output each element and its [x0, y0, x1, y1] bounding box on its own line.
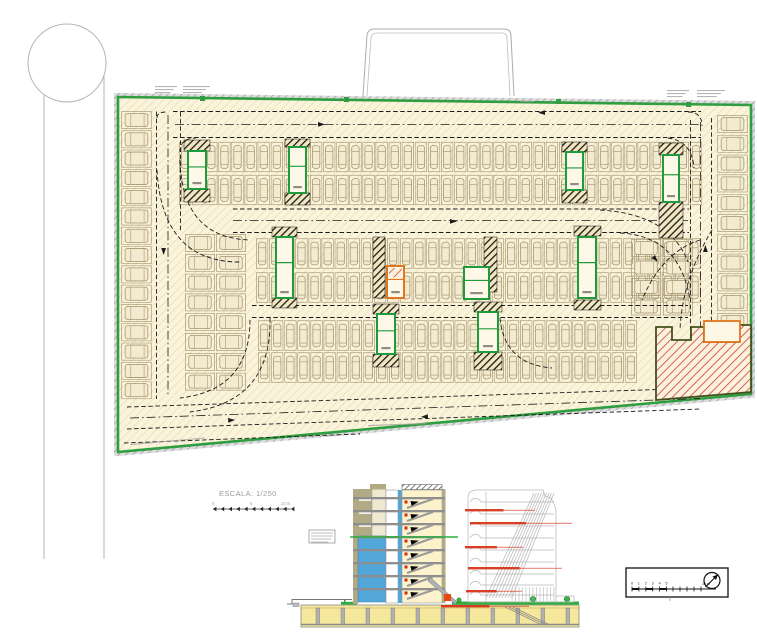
parking-stall	[122, 266, 152, 283]
red-annotation-text	[470, 522, 526, 524]
parking-stall	[122, 246, 152, 263]
hazard-stripe	[373, 237, 385, 298]
parking-stall	[122, 382, 152, 399]
red-annotation-text	[441, 605, 489, 607]
drawing-sheet: ESCALA: 1/250 0 5 10 m	[0, 0, 757, 634]
parking-stall	[185, 274, 214, 291]
parking-stall	[122, 189, 152, 206]
tree-icon	[457, 598, 461, 602]
scale-tick-10m: 10 m	[281, 501, 291, 506]
parking-stall	[122, 343, 152, 360]
parking-stall	[185, 353, 214, 370]
parking-stall	[718, 214, 748, 231]
elevator-shaft	[386, 490, 398, 603]
north-scale-box: 01234510 m	[626, 568, 728, 601]
border-marker	[344, 97, 349, 102]
micro-text-line	[667, 90, 689, 91]
hazard-stripe	[285, 139, 310, 147]
micro-text-line	[155, 92, 170, 93]
scale-tick	[252, 507, 255, 511]
parking-stall	[631, 259, 660, 276]
border-marker	[556, 99, 561, 104]
parking-stall	[216, 254, 245, 271]
fire-exit-mark	[405, 501, 408, 504]
micro-text-line	[155, 89, 174, 90]
parking-stall	[216, 234, 245, 251]
facade-diagonal-line	[512, 493, 554, 598]
hazard-stripe	[272, 298, 297, 308]
parking-stall	[185, 373, 214, 390]
scale-tick-0: 0	[212, 501, 215, 506]
parking-stall	[216, 274, 245, 291]
parking-stall	[718, 115, 748, 132]
core-label-mark	[293, 186, 302, 188]
parapet	[370, 484, 386, 490]
hazard-stripe	[574, 300, 601, 310]
legend-box	[309, 530, 335, 543]
scale-number: 1	[638, 582, 640, 586]
micro-text-line	[183, 92, 202, 93]
hazard-stripe	[474, 302, 502, 312]
facade-blue-strip	[398, 490, 402, 603]
parking-stall	[718, 274, 748, 291]
scale-number: 5	[666, 582, 668, 586]
cad-canvas: ESCALA: 1/250 0 5 10 m	[0, 0, 757, 634]
hazard-stripe	[562, 142, 587, 152]
red-annotation-text	[466, 590, 497, 592]
scale-tick-5: 5	[250, 501, 253, 506]
core-label-mark	[391, 291, 400, 293]
building-section	[287, 484, 579, 627]
hazard-stripe	[659, 202, 683, 238]
border-marker	[686, 102, 691, 107]
parking-stall	[663, 298, 692, 315]
parking-stall	[718, 135, 748, 152]
scale-tick	[221, 507, 224, 511]
exit-orange-box	[444, 594, 451, 601]
basement-column	[441, 608, 445, 625]
micro-text-line	[667, 96, 682, 97]
parking-stall	[663, 278, 692, 295]
parking-stall	[122, 285, 152, 302]
facade-diagonal-line	[502, 493, 547, 598]
fire-exit-mark	[405, 514, 408, 517]
scale-segment	[632, 588, 639, 590]
basement-column	[366, 608, 370, 625]
scale-segment	[660, 588, 667, 590]
basement-column	[416, 608, 420, 625]
parking-stall	[216, 314, 245, 331]
micro-text-line	[183, 89, 206, 90]
fire-exit-mark	[405, 553, 408, 556]
fire-exit-mark	[405, 579, 408, 582]
micro-text-cluster	[520, 101, 534, 102]
micro-text-cluster	[697, 90, 725, 97]
facade-diagonal-line	[489, 493, 536, 598]
micro-text-line	[697, 93, 721, 94]
section-tower	[350, 484, 458, 605]
scale-tick	[291, 507, 294, 511]
basement-column	[391, 608, 395, 625]
facade-diagonal-line	[508, 493, 551, 598]
micro-text-line	[667, 93, 686, 94]
scale-number: 4	[659, 582, 661, 586]
parking-stall	[185, 294, 214, 311]
parking-stall	[122, 324, 152, 341]
parking-stall	[631, 239, 660, 256]
red-annotations	[441, 509, 572, 607]
ramp-orange-box	[704, 321, 740, 342]
parking-stall	[185, 234, 214, 251]
red-annotation-text	[465, 546, 497, 548]
red-annotation-text	[468, 567, 520, 569]
hazard-stripe	[285, 193, 310, 205]
border-marker	[200, 96, 205, 101]
parking-stall	[718, 294, 748, 311]
scale-number: 0	[631, 582, 633, 586]
elevation-floor-line	[470, 534, 554, 538]
basement-column	[466, 608, 470, 625]
micro-text-line	[697, 90, 725, 91]
parking-stall	[122, 227, 152, 244]
core-label-mark	[382, 347, 391, 349]
core-label-mark	[193, 182, 202, 184]
parking-stall	[718, 254, 748, 271]
basement-column	[341, 608, 345, 625]
parking-stall	[122, 150, 152, 167]
parking-stall	[631, 278, 660, 295]
parking-stall	[122, 208, 152, 225]
parking-stall	[185, 333, 214, 350]
ramp-area	[656, 321, 751, 400]
hazard-stripe	[272, 227, 297, 237]
facade-diagonal-line	[499, 493, 544, 598]
scale-tick	[268, 507, 271, 511]
parking-stall	[122, 131, 152, 148]
hazard-stripe	[184, 189, 210, 202]
scale-number: 3	[652, 582, 654, 586]
facade-diagonal-line	[492, 493, 539, 598]
building-footprint-inner	[367, 33, 510, 96]
fire-exit-mark	[405, 527, 408, 530]
parking-stall	[631, 298, 660, 315]
parking-stall	[216, 333, 245, 350]
basement-column	[491, 608, 495, 625]
micro-text-line	[697, 96, 717, 97]
basement-column	[316, 608, 320, 625]
scale-tick	[260, 507, 263, 511]
scale-tick	[229, 507, 232, 511]
facade-blue-panel	[358, 536, 386, 602]
parking-stall	[718, 234, 748, 251]
fire-exit-mark	[405, 540, 408, 543]
roof-hatch	[402, 485, 442, 490]
core-hatch-cell	[389, 268, 402, 277]
fire-exit-mark	[405, 592, 408, 595]
tree-icon	[564, 596, 570, 602]
hazard-stripe	[574, 226, 601, 236]
stair-core	[578, 237, 596, 298]
scale-number: 2	[645, 582, 647, 586]
hazard-stripe	[373, 354, 399, 367]
parking-stall	[718, 195, 748, 212]
micro-text-cluster	[155, 86, 177, 93]
hazard-stripe	[184, 140, 210, 151]
parking-stall	[718, 175, 748, 192]
parking-stall	[663, 239, 692, 256]
building-footprint-outline	[363, 29, 514, 96]
parking-stall	[216, 294, 245, 311]
micro-text-cluster	[183, 86, 210, 93]
scale-tick	[244, 507, 247, 511]
stair-core	[276, 237, 293, 298]
scale-tick	[275, 507, 278, 511]
elevation-floor-line	[470, 570, 554, 574]
parking-stall	[185, 254, 214, 271]
core-label-mark	[470, 292, 483, 294]
parking-stall	[185, 314, 214, 331]
core-label-mark	[667, 195, 675, 197]
core-label-mark	[583, 291, 592, 293]
cul-de-sac-road	[28, 24, 106, 102]
parking-stall	[122, 304, 152, 321]
parking-stall	[122, 362, 152, 379]
stair-core	[663, 155, 679, 202]
micro-text-line	[155, 86, 177, 87]
parking-plan	[118, 86, 751, 452]
scale-tick	[236, 507, 239, 511]
scale-label: ESCALA: 1/250	[219, 489, 277, 498]
scale-tick	[213, 507, 216, 511]
hazard-stripe	[562, 190, 587, 203]
parking-stall	[122, 169, 152, 186]
hazard-stripe	[659, 143, 683, 155]
scale-bar: ESCALA: 1/250 0 5 10 m	[212, 489, 294, 511]
core-label-mark	[570, 183, 579, 185]
micro-text-cluster	[667, 90, 689, 97]
scale-tick	[283, 507, 286, 511]
fire-exit-mark	[405, 566, 408, 569]
micro-text-line	[520, 101, 534, 102]
parking-stall	[718, 155, 748, 172]
red-annotation-text	[465, 509, 504, 511]
core-label-mark	[280, 291, 289, 293]
core-label-mark	[483, 345, 493, 347]
parking-stall	[122, 111, 152, 128]
scale-segment	[646, 588, 653, 590]
basement-column	[566, 608, 570, 625]
hazard-stripe	[373, 304, 399, 314]
facade-diagonal-line	[496, 493, 542, 598]
micro-text-line	[183, 86, 210, 87]
hazard-stripe	[474, 352, 502, 370]
